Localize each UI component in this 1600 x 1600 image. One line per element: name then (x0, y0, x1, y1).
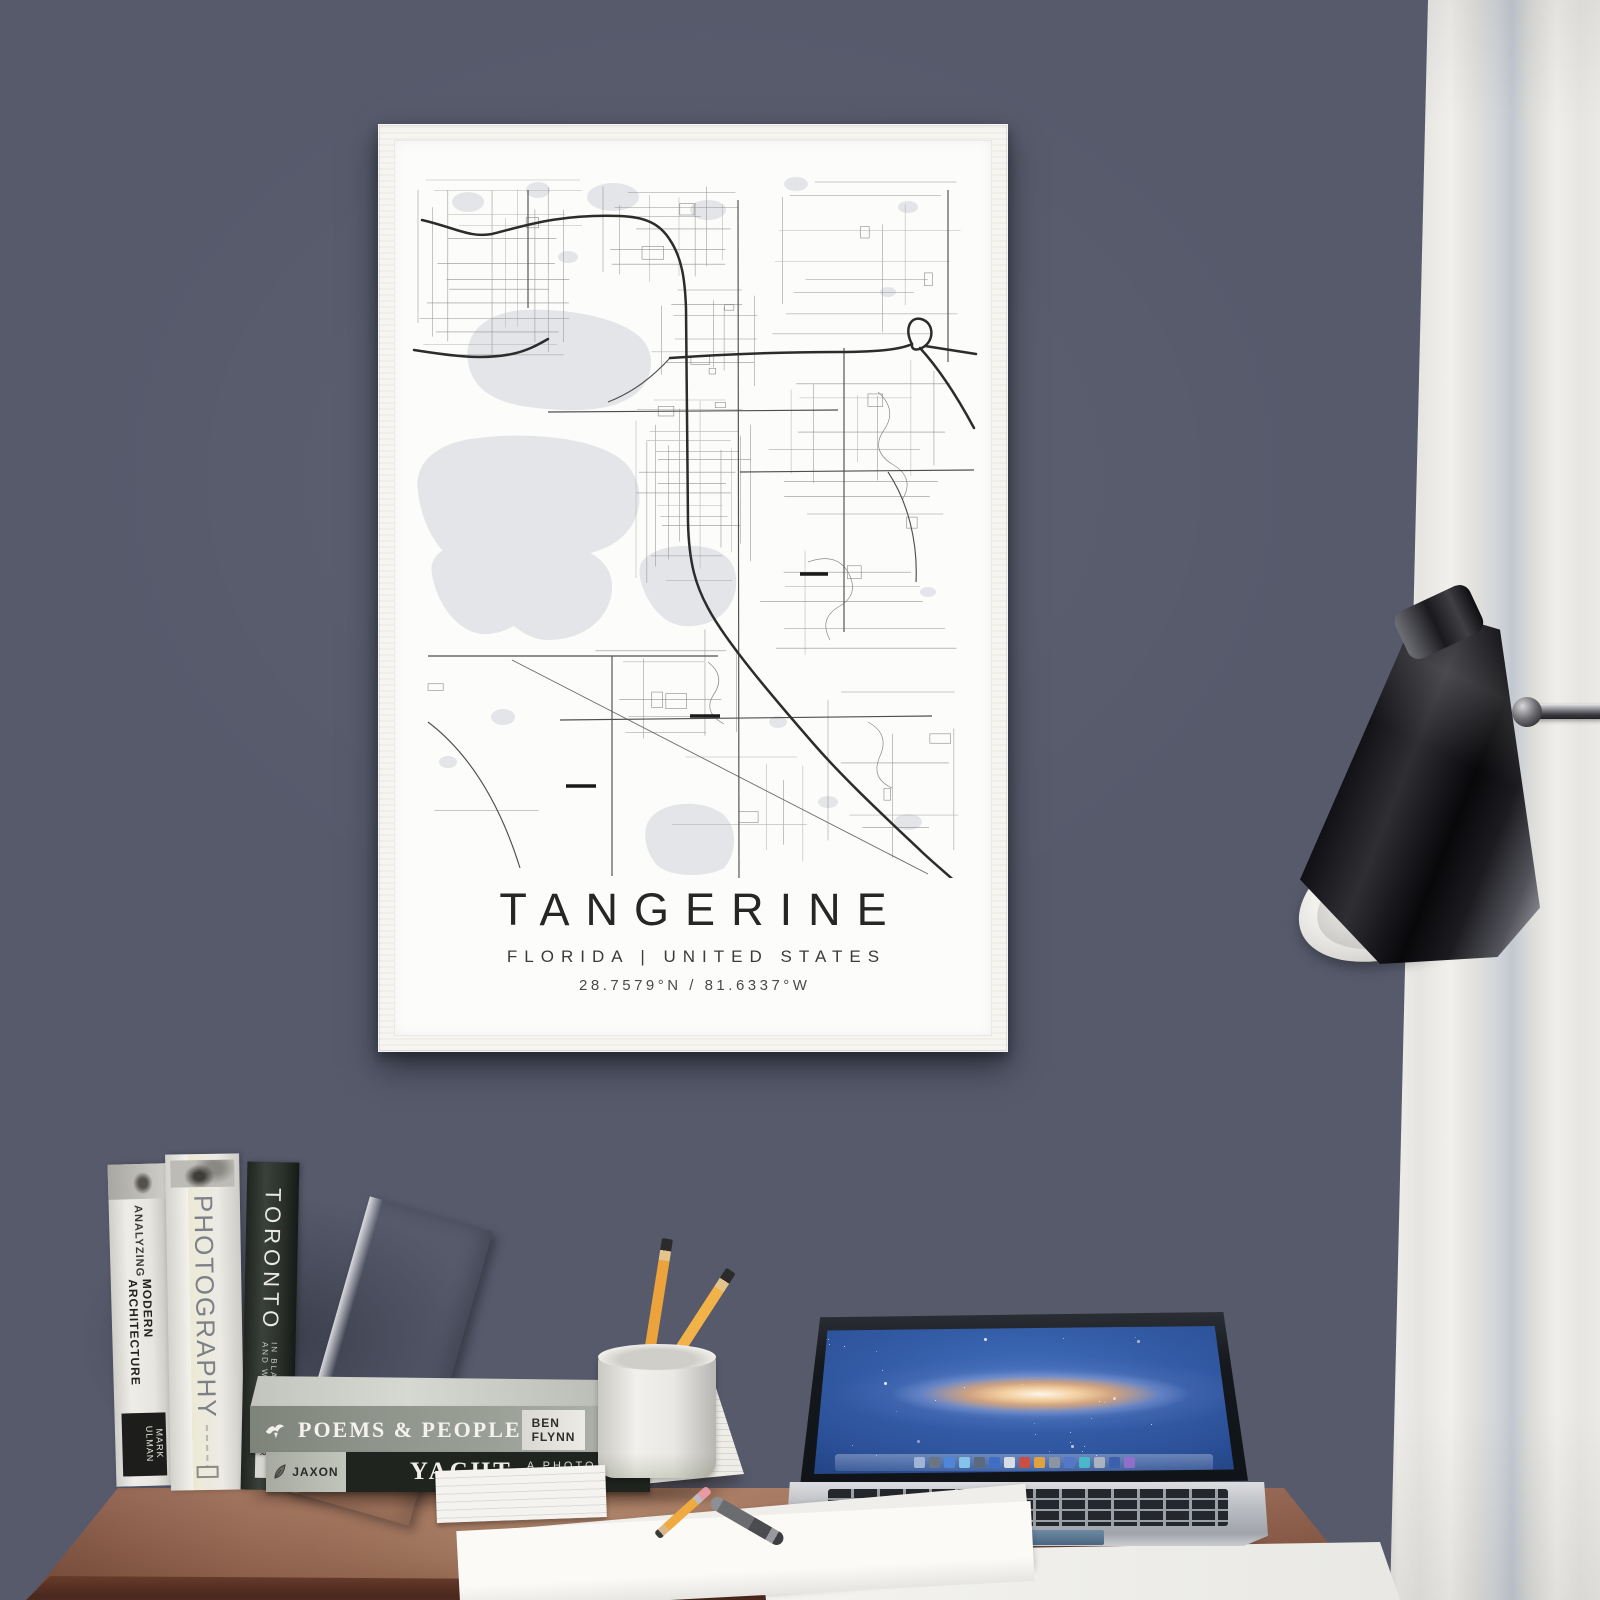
wallpaper-stars (844, 1346, 845, 1347)
map-major-road (670, 344, 912, 358)
map-block (924, 273, 932, 286)
dock-app-icon (1019, 1457, 1030, 1468)
book-photography-cover-photo (170, 1159, 234, 1187)
map-poster-frame: TANGERINE FLORIDA | UNITED STATES 28.757… (378, 124, 1008, 1052)
pencil-cup-rim (598, 1344, 716, 1370)
map-lake (784, 177, 808, 191)
laptop-wallpaper (814, 1326, 1234, 1474)
book-photography-small-text (206, 1425, 209, 1466)
eagle-icon (264, 1420, 286, 1440)
dock-app-icon (929, 1457, 940, 1468)
city-map (408, 162, 978, 878)
map-major-road (920, 348, 974, 428)
map-lake (645, 804, 734, 875)
dock-app-icon (1124, 1457, 1135, 1468)
dock-app-icon (1094, 1457, 1105, 1468)
map-secondary-road (548, 410, 838, 412)
dock-app-icon (914, 1457, 925, 1468)
map-block (725, 305, 734, 310)
map-lake (558, 251, 578, 263)
map-block (642, 246, 664, 259)
dock-app-icon (974, 1457, 985, 1468)
room-scene: TANGERINE FLORIDA | UNITED STATES 28.757… (0, 0, 1600, 1600)
book-poems-and-people: POEMS & PEOPLE BEN FLYNN (250, 1406, 598, 1453)
map-lake (639, 546, 736, 626)
dock-app-icon (1109, 1457, 1120, 1468)
dock-app-icon (1064, 1457, 1075, 1468)
map-block (930, 734, 951, 743)
poster-title: TANGERINE (483, 884, 902, 936)
poster-subtitle: FLORIDA | UNITED STATES (500, 947, 886, 967)
dock-app-icon (1049, 1457, 1060, 1468)
dock-app-icon (989, 1457, 1000, 1468)
laptop-dock (835, 1454, 1213, 1471)
map-loop-street (878, 392, 907, 500)
map-block (884, 789, 891, 801)
book-architecture-author: MARK ULMAN (121, 1412, 167, 1476)
map-secondary-road (740, 470, 974, 472)
poems-book-top-board (250, 1376, 646, 1408)
dock-app-icon (1079, 1457, 1090, 1468)
book-photography: PHOTOGRAPHY (165, 1153, 245, 1490)
map-lake (439, 756, 457, 768)
map-lake (491, 709, 515, 725)
map-lake (587, 183, 639, 211)
map-loop-street (868, 722, 892, 788)
book-architecture: ANALYZING MODERN ARCHITECTURE MARK ULMAN (108, 1163, 175, 1486)
poster-coordinates: 28.7579°N / 81.6337°W (576, 977, 811, 994)
book-toronto-title: TORONTO (257, 1188, 286, 1333)
pencil-cup (598, 1352, 716, 1478)
map-block (666, 693, 687, 708)
dock-app-icon (944, 1457, 955, 1468)
book-poems-title: POEMS & PEOPLE (298, 1417, 522, 1443)
book-architecture-title-1: ANALYZING (132, 1205, 146, 1277)
dock-app-icon (959, 1457, 970, 1468)
book-yacht-label: JAXON (266, 1452, 346, 1492)
map-secondary-road (888, 472, 916, 582)
book-yacht-label-text: JAXON (292, 1465, 338, 1479)
book-photography-publisher-logo (197, 1466, 219, 1479)
map-major-road (925, 346, 976, 354)
map-block (906, 517, 917, 528)
map-block (868, 394, 883, 406)
map-lake (920, 587, 936, 597)
dock-app-icon (1034, 1457, 1045, 1468)
paper-stack (435, 1465, 607, 1523)
map-secondary-road (560, 716, 932, 720)
map-block (715, 402, 725, 407)
book-poems-author: BEN FLYNN (522, 1410, 586, 1450)
lamp-joint (1512, 697, 1542, 727)
map-lake (526, 182, 550, 198)
book-photography-title: PHOTOGRAPHY (187, 1195, 222, 1419)
feather-icon (273, 1464, 287, 1480)
map-block (739, 812, 758, 823)
map-block (861, 227, 870, 238)
book-architecture-title-2: MODERN ARCHITECTURE (126, 1278, 158, 1413)
poster-paper: TANGERINE FLORIDA | UNITED STATES 28.757… (394, 140, 992, 1036)
map-block (428, 684, 443, 691)
book-architecture-cover-photo (108, 1163, 167, 1199)
map-loop-street (808, 559, 853, 640)
map-lake (898, 201, 918, 213)
dock-app-icon (1004, 1457, 1015, 1468)
map-lake (452, 192, 484, 212)
map-block (709, 368, 716, 374)
map-secondary-road (428, 722, 520, 868)
